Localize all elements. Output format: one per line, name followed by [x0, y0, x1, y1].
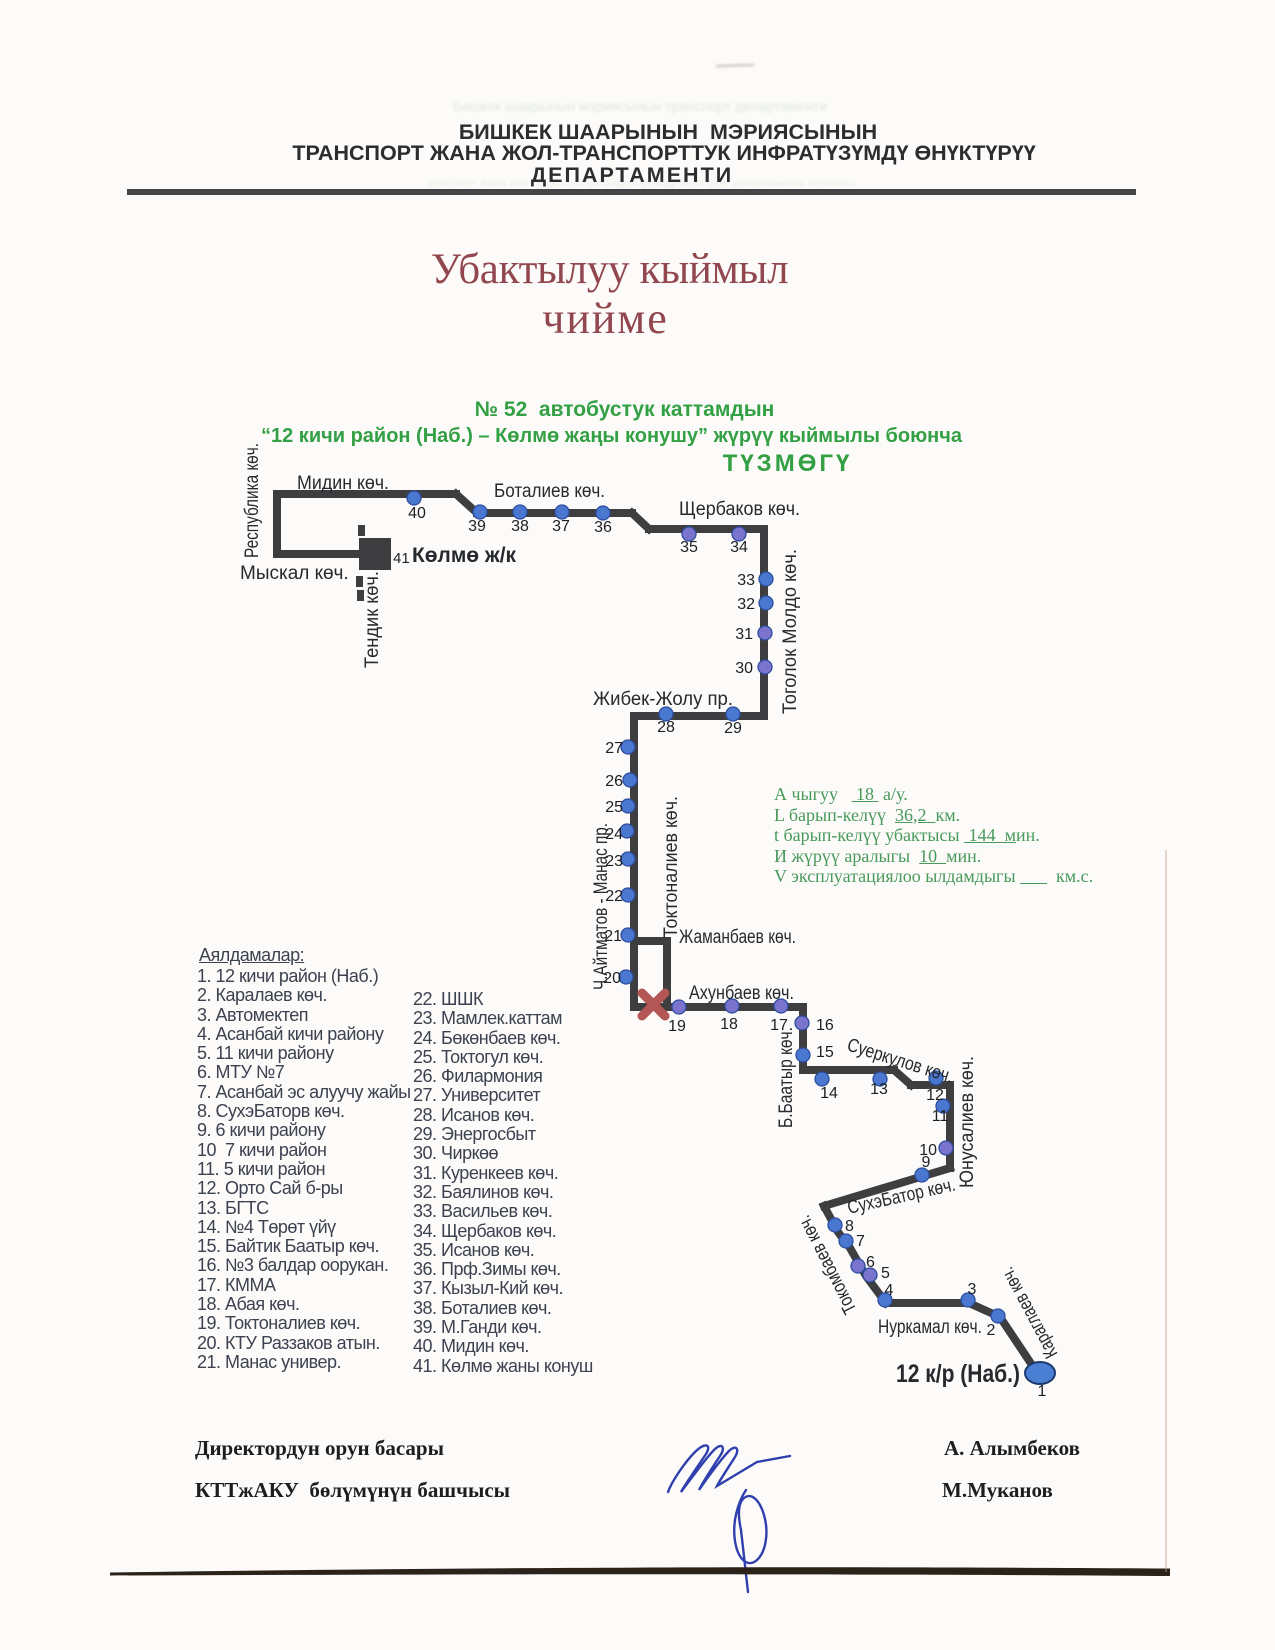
svg-text:Ч.Айтматов - Манас пр.: Ч.Айтматов - Манас пр. — [591, 823, 612, 990]
svg-text:11: 11 — [932, 1108, 949, 1125]
svg-text:41: 41 — [393, 550, 410, 567]
svg-text:Тоголок Молдо көч.: Тоголок Молдо көч. — [780, 549, 801, 714]
svg-text:Ахунбаев көч.: Ахунбаев көч. — [689, 983, 794, 1004]
svg-text:30: 30 — [735, 660, 753, 677]
svg-text:29: 29 — [724, 720, 742, 737]
svg-text:12: 12 — [926, 1087, 944, 1104]
svg-text:Мидин көч.: Мидин көч. — [297, 473, 389, 494]
svg-text:19: 19 — [668, 1018, 686, 1035]
svg-text:34: 34 — [730, 539, 748, 556]
svg-text:9: 9 — [922, 1154, 931, 1171]
svg-text:18: 18 — [720, 1016, 738, 1033]
svg-text:27: 27 — [605, 740, 623, 757]
svg-text:2: 2 — [987, 1322, 996, 1339]
svg-text:38: 38 — [511, 518, 529, 535]
svg-text:33: 33 — [737, 572, 755, 589]
svg-text:5: 5 — [881, 1265, 890, 1282]
svg-text:6: 6 — [866, 1254, 875, 1271]
svg-text:Нуркамал көч.: Нуркамал көч. — [878, 1317, 982, 1338]
svg-text:32: 32 — [737, 596, 755, 613]
svg-text:1: 1 — [1038, 1383, 1047, 1400]
svg-text:4: 4 — [885, 1282, 894, 1299]
svg-text:Токтоналиев көч.: Токтоналиев көч. — [661, 796, 682, 938]
svg-text:39: 39 — [468, 518, 486, 535]
svg-text:Боталиев көч.: Боталиев көч. — [494, 481, 605, 502]
svg-text:26: 26 — [605, 773, 623, 790]
svg-text:35: 35 — [680, 539, 698, 556]
svg-text:14: 14 — [820, 1085, 838, 1102]
svg-text:28: 28 — [657, 719, 675, 736]
svg-text:Юнусалиев көч.: Юнусалиев көч. — [957, 1056, 978, 1188]
svg-text:13: 13 — [870, 1081, 888, 1098]
svg-text:31: 31 — [735, 626, 753, 643]
svg-text:Жаманбаев көч.: Жаманбаев көч. — [679, 927, 796, 948]
svg-text:36: 36 — [594, 519, 612, 536]
svg-text:8: 8 — [845, 1218, 854, 1235]
svg-text:Караглаев көч.: Караглаев көч. — [997, 1263, 1062, 1361]
svg-text:15: 15 — [816, 1044, 834, 1061]
svg-text:12 к/р (Наб.): 12 к/р (Наб.) — [896, 1360, 1020, 1388]
svg-text:Б.Баатыр көч.: Б.Баатыр көч. — [776, 1027, 797, 1128]
svg-text:Щербаков көч.: Щербаков көч. — [679, 499, 800, 520]
svg-text:Жибек-Жолу пр.: Жибек-Жолу пр. — [593, 689, 733, 710]
svg-text:16: 16 — [816, 1017, 834, 1034]
svg-text:25: 25 — [605, 799, 623, 816]
svg-text:Республика көч.: Республика көч. — [242, 443, 263, 558]
svg-text:Мыскал көч.: Мыскал көч. — [240, 563, 349, 584]
svg-text:7: 7 — [856, 1233, 865, 1250]
svg-text:40: 40 — [408, 505, 426, 522]
svg-text:37: 37 — [552, 518, 570, 535]
svg-text:3: 3 — [968, 1281, 977, 1298]
svg-text:Көлмө ж/к: Көлмө ж/к — [412, 544, 516, 567]
svg-text:Тендик көч.: Тендик көч. — [362, 571, 383, 668]
